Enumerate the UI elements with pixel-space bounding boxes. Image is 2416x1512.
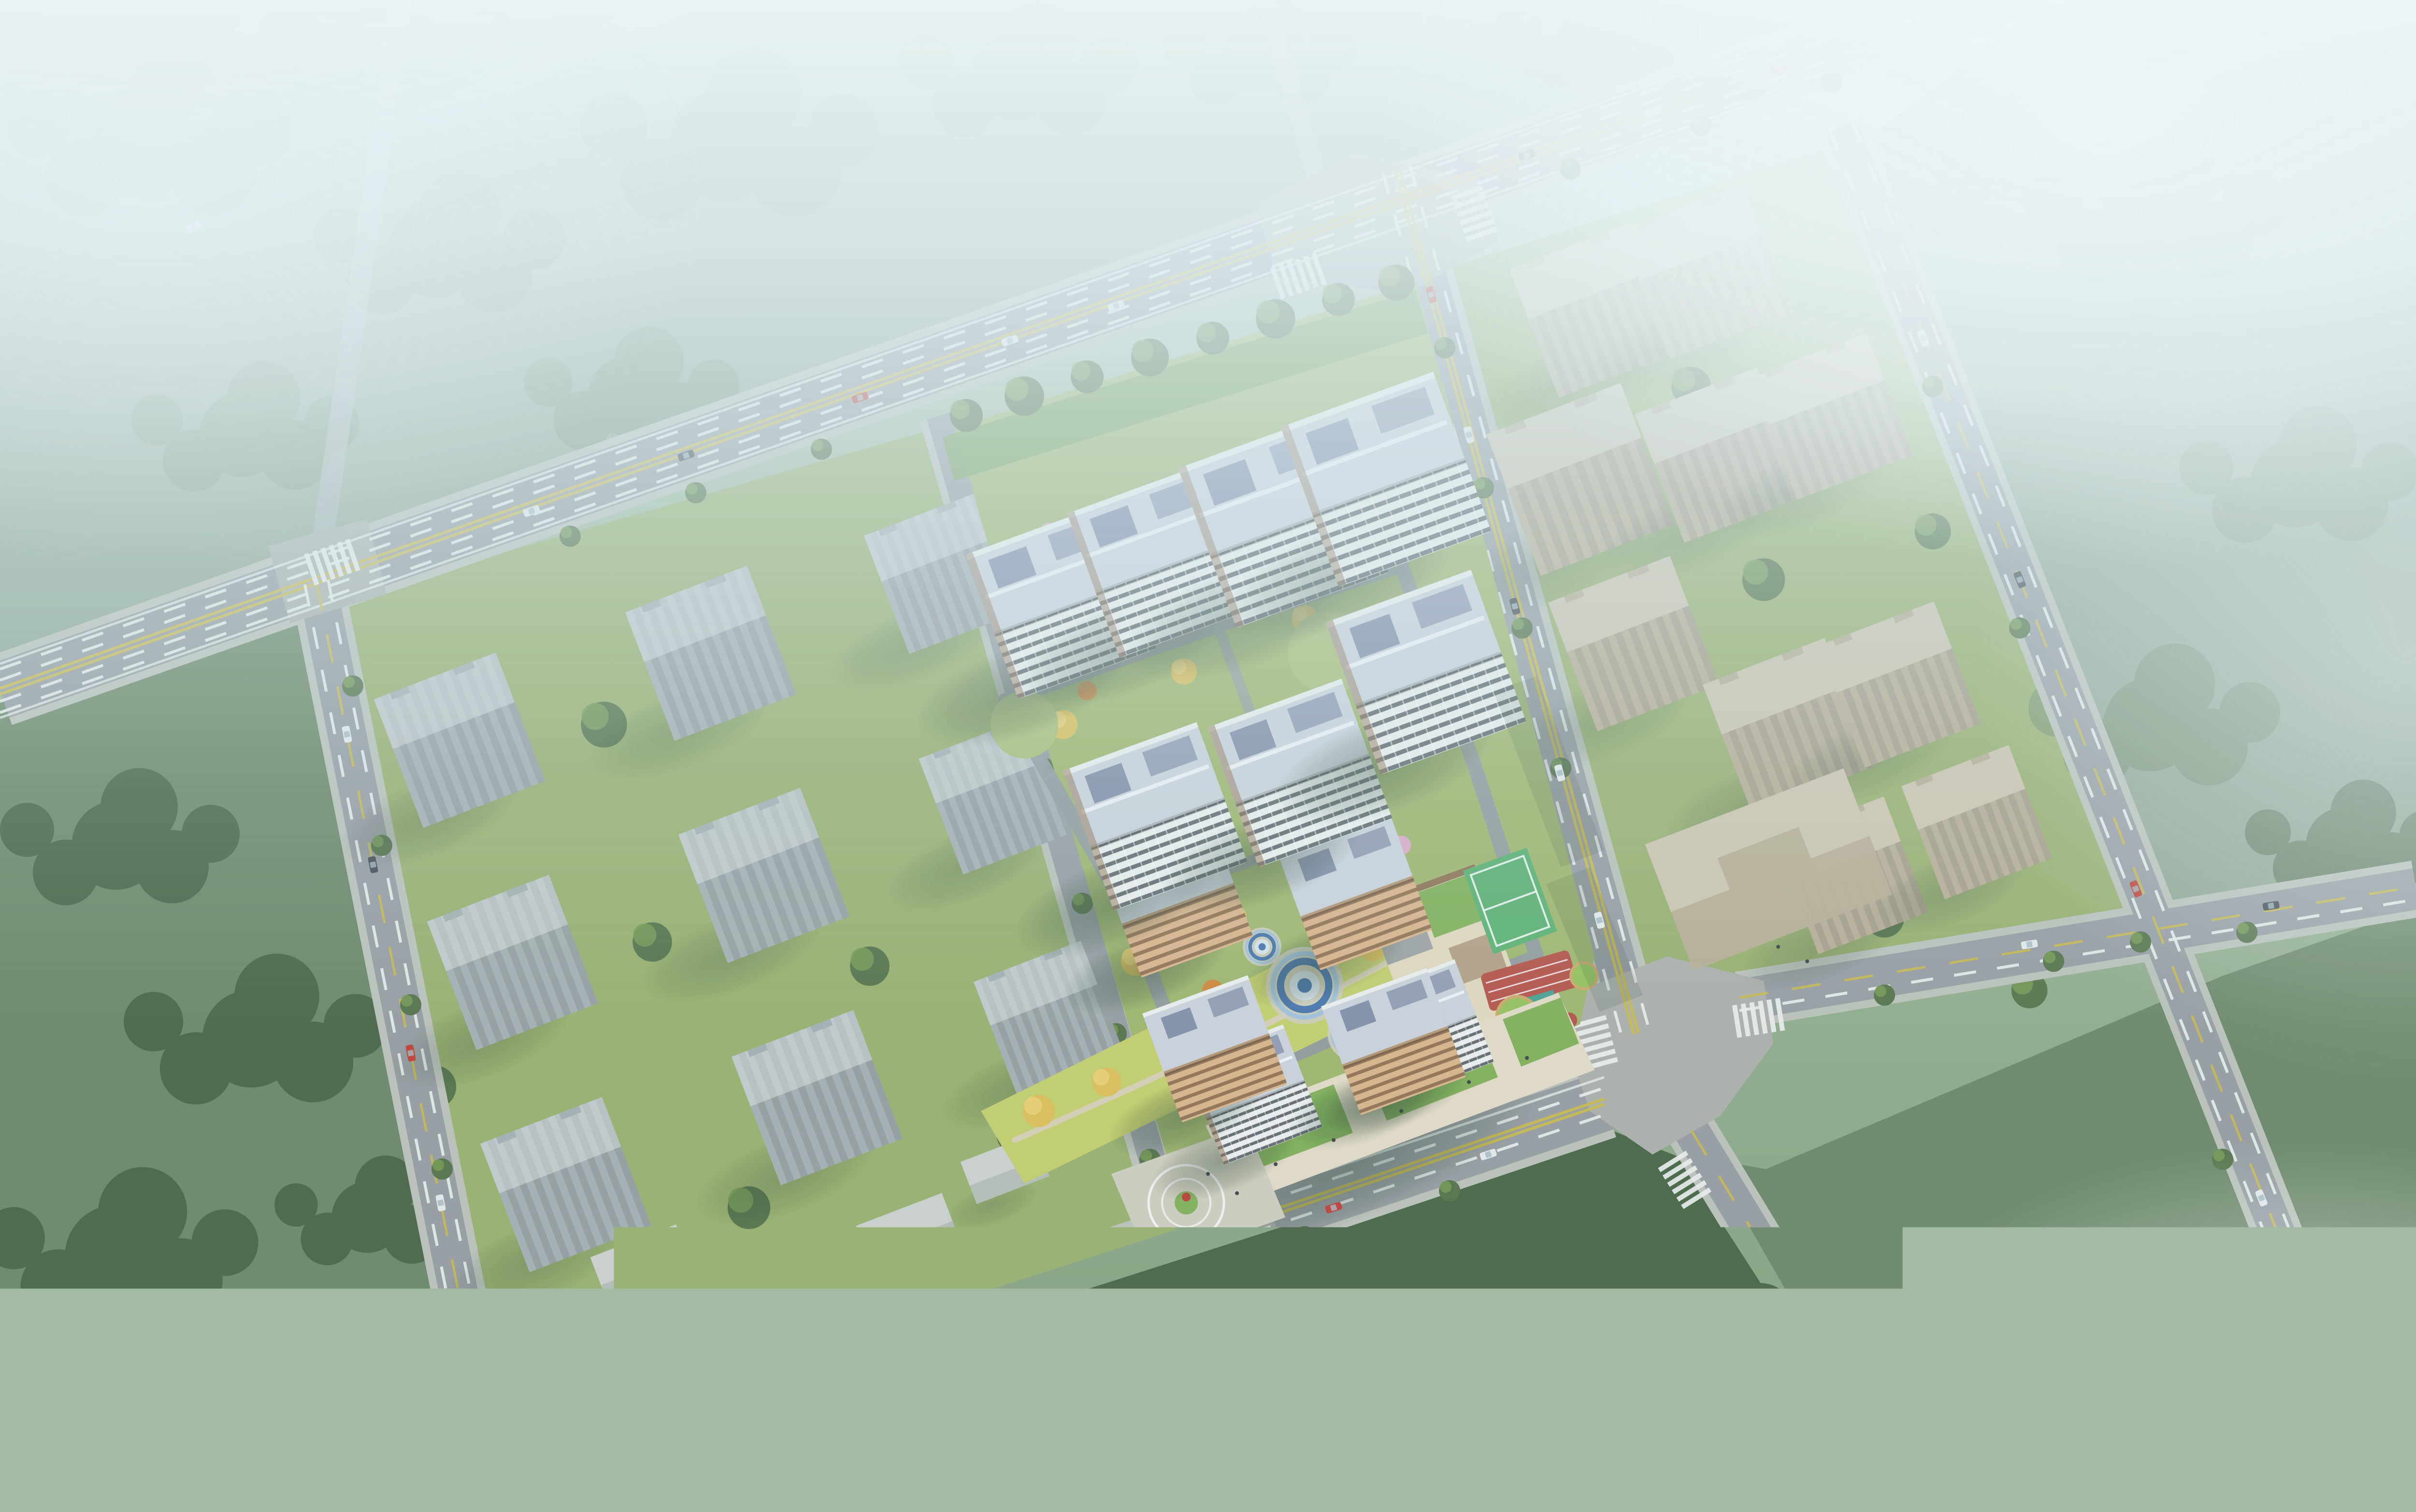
aerial-render-stage	[0, 0, 2416, 1512]
fog-layer	[0, 0, 2416, 1512]
aerial-render	[0, 0, 2416, 1512]
